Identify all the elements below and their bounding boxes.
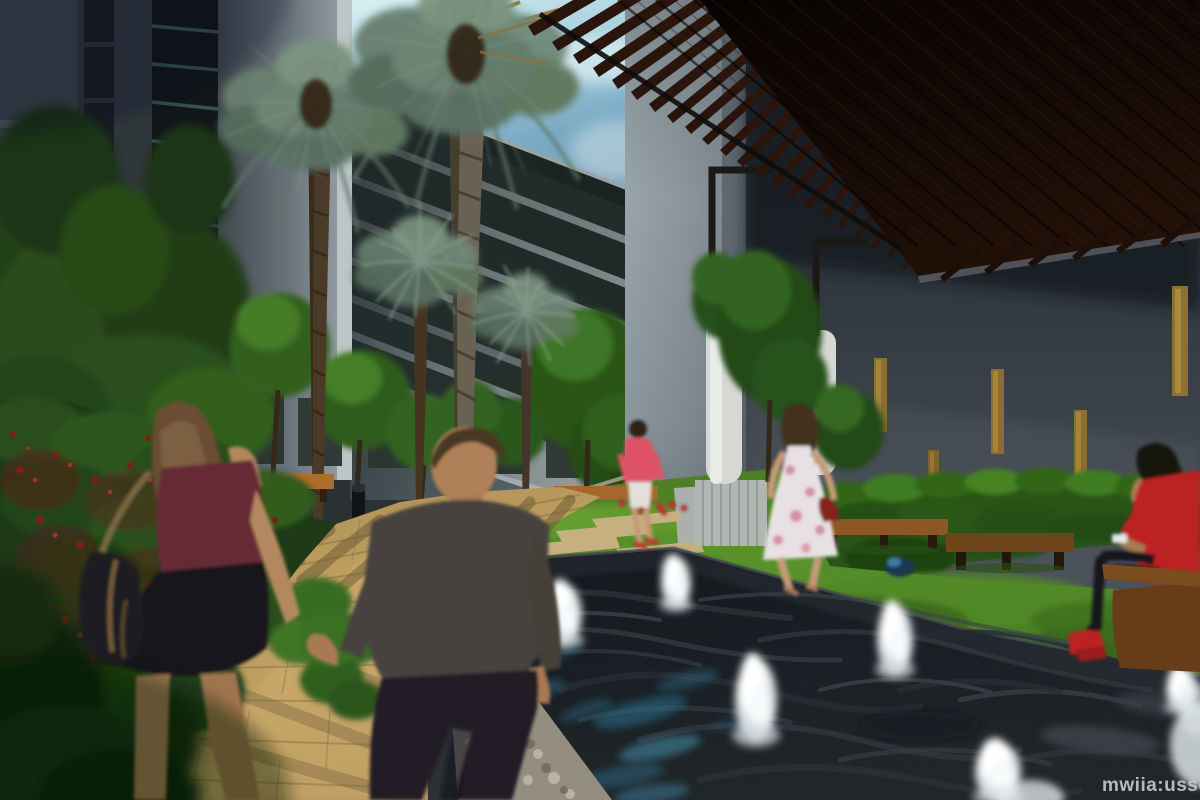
svg-text:mwiia:usse: mwiia:usse [1102,775,1200,796]
